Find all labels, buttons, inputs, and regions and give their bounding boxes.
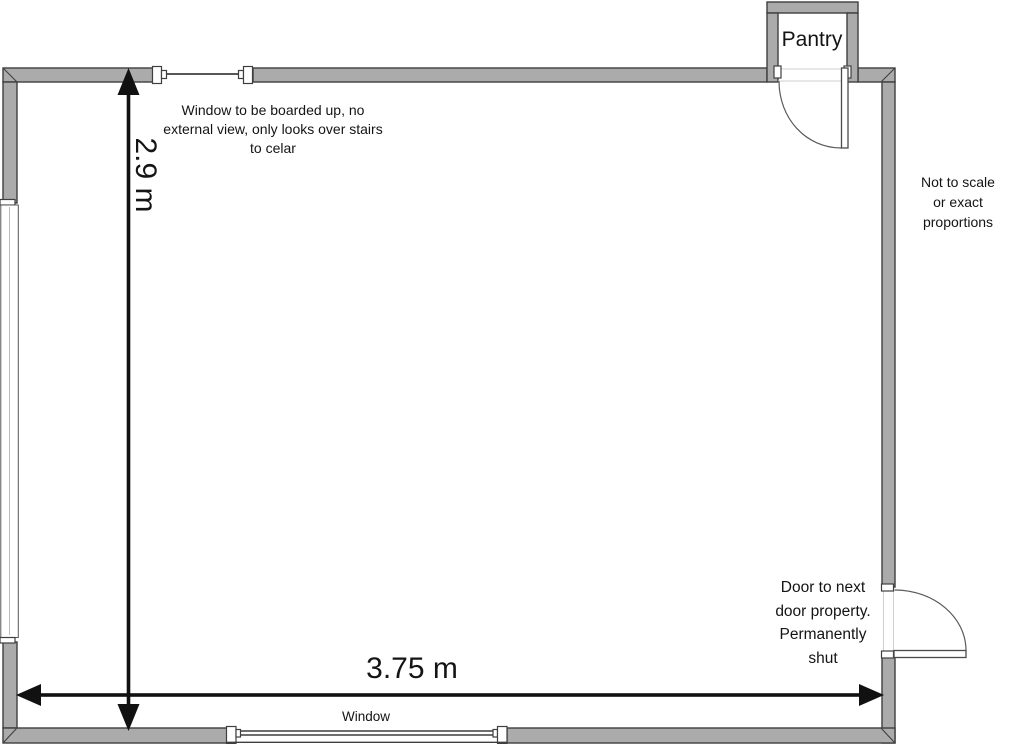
pantry-label: Pantry [762,28,862,52]
pantry-door-leaf [842,68,849,148]
party-door-note-line: door property. [743,600,903,624]
horizontal-dimension-arrow [16,684,884,706]
party-door-note-line: Permanently [743,623,903,647]
bottom-window [227,727,508,744]
pantry-door-arc [779,81,842,148]
party-door-leaf [894,651,966,658]
boarded-window-note: Window to be boarded up, no external vie… [133,101,413,158]
left-window [0,200,18,644]
boarded-window-note-line: to celar [133,139,413,158]
party-door-note-line: Door to next [743,576,903,600]
party-door-arc [895,590,967,651]
bottom-window-label: Window [316,709,416,724]
top-wall [3,68,895,82]
party-door-note-line: shut [743,647,903,671]
boarded-window-note-line: Window to be boarded up, no [133,101,413,120]
boarded-window [153,67,253,84]
pantry-door [774,66,851,148]
boarded-window-note-line: external view, only looks over stairs [133,120,413,139]
height-dimension-label: 2.9 m [130,120,160,230]
scale-note-line: proportions [898,212,1009,232]
floor-plan-page: { "floor_plan": { "room_labels": { "pant… [0,0,1009,744]
width-dimension-label: 3.75 m [332,652,492,686]
scale-note: Not to scale or exact proportions [898,172,1009,232]
scale-note-line: Not to scale [898,172,1009,192]
party-door-note: Door to next door property. Permanently … [743,576,903,670]
scale-note-line: or exact [898,192,1009,212]
